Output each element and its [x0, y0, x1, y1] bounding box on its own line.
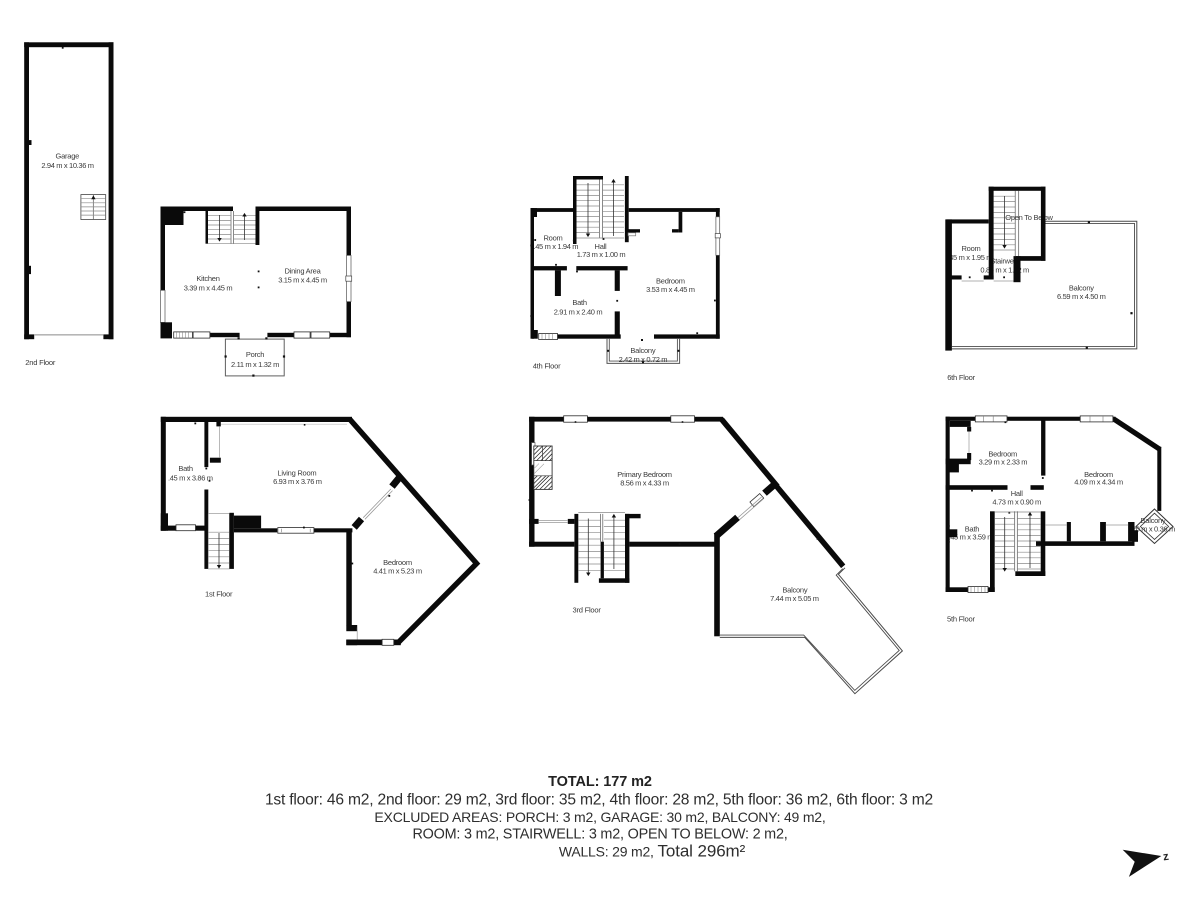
svg-text:2.11 m x 1.32 m: 2.11 m x 1.32 m	[231, 360, 279, 369]
svg-text:Bath: Bath	[178, 464, 193, 473]
svg-text:Bath: Bath	[572, 298, 587, 307]
svg-text:1st Floor: 1st Floor	[205, 590, 233, 599]
svg-text:3.15 m x 4.45 m: 3.15 m x 4.45 m	[278, 276, 327, 285]
svg-text:2.94 m x 10.36 m: 2.94 m x 10.36 m	[41, 161, 93, 170]
svg-text:2.91 m x 2.40 m: 2.91 m x 2.40 m	[554, 307, 603, 316]
svg-text:Stairwell: Stairwell	[990, 256, 1017, 265]
svg-text:8.56 m x 4.33 m: 8.56 m x 4.33 m	[620, 478, 669, 487]
svg-text:ROOM: 3 m2, STAIRWELL: 3 m2, O: ROOM: 3 m2, STAIRWELL: 3 m2, OPEN TO BEL…	[412, 827, 787, 843]
svg-text:Balcony: Balcony	[1069, 283, 1094, 292]
svg-text:4.73 m x 0.90 m: 4.73 m x 0.90 m	[992, 497, 1041, 506]
svg-text:Room: Room	[961, 244, 980, 253]
svg-text:2nd Floor: 2nd Floor	[25, 358, 56, 367]
svg-text:Balcony: Balcony	[630, 346, 655, 355]
svg-text:1.73 m x 1.00 m: 1.73 m x 1.00 m	[577, 250, 626, 259]
svg-text:Porch: Porch	[246, 350, 264, 359]
svg-text:WALLS: 29 m2, Total 296m²: WALLS: 29 m2, Total 296m²	[559, 841, 746, 860]
svg-text:3.53 m x 4.45 m: 3.53 m x 4.45 m	[646, 285, 695, 294]
svg-text:.45 m x 3.86 m: .45 m x 3.86 m	[168, 474, 213, 483]
svg-text:4.09 m x 4.34 m: 4.09 m x 4.34 m	[1074, 478, 1123, 487]
svg-text:Dining Area: Dining Area	[284, 267, 321, 276]
svg-text:3rd Floor: 3rd Floor	[573, 606, 602, 615]
svg-text:.45 m x 1.94 m: .45 m x 1.94 m	[534, 242, 579, 251]
svg-text:.45 m x 1.95 m: .45 m x 1.95 m	[948, 253, 993, 262]
svg-text:6.59 m x 4.50 m: 6.59 m x 4.50 m	[1057, 292, 1106, 301]
svg-text:Kitchen: Kitchen	[196, 274, 219, 283]
svg-text:3.29 m x 2.33 m: 3.29 m x 2.33 m	[979, 458, 1028, 467]
svg-text:3.39 m x 4.45 m: 3.39 m x 4.45 m	[184, 284, 233, 293]
svg-text:5th Floor: 5th Floor	[947, 615, 975, 624]
svg-text:EXCLUDED AREAS: PORCH: 3 m2, G: EXCLUDED AREAS: PORCH: 3 m2, GARAGE: 30 …	[374, 809, 825, 825]
svg-text:6th Floor: 6th Floor	[947, 373, 975, 382]
svg-text:Garage: Garage	[56, 152, 80, 161]
svg-text:7.44 m x 5.05 m: 7.44 m x 5.05 m	[770, 594, 819, 603]
svg-text:1st floor: 46 m2, 2nd floor: 2: 1st floor: 46 m2, 2nd floor: 29 m2, 3rd …	[265, 792, 933, 809]
svg-text:TOTAL: 177 m2: TOTAL: 177 m2	[548, 774, 652, 790]
svg-text:0.85 m x 1.02 m: 0.85 m x 1.02 m	[980, 266, 1029, 275]
svg-text:6.93 m x 3.76 m: 6.93 m x 3.76 m	[273, 477, 322, 486]
svg-text:4.41 m x 5.23 m: 4.41 m x 5.23 m	[373, 567, 422, 576]
svg-text:4th Floor: 4th Floor	[533, 361, 561, 370]
